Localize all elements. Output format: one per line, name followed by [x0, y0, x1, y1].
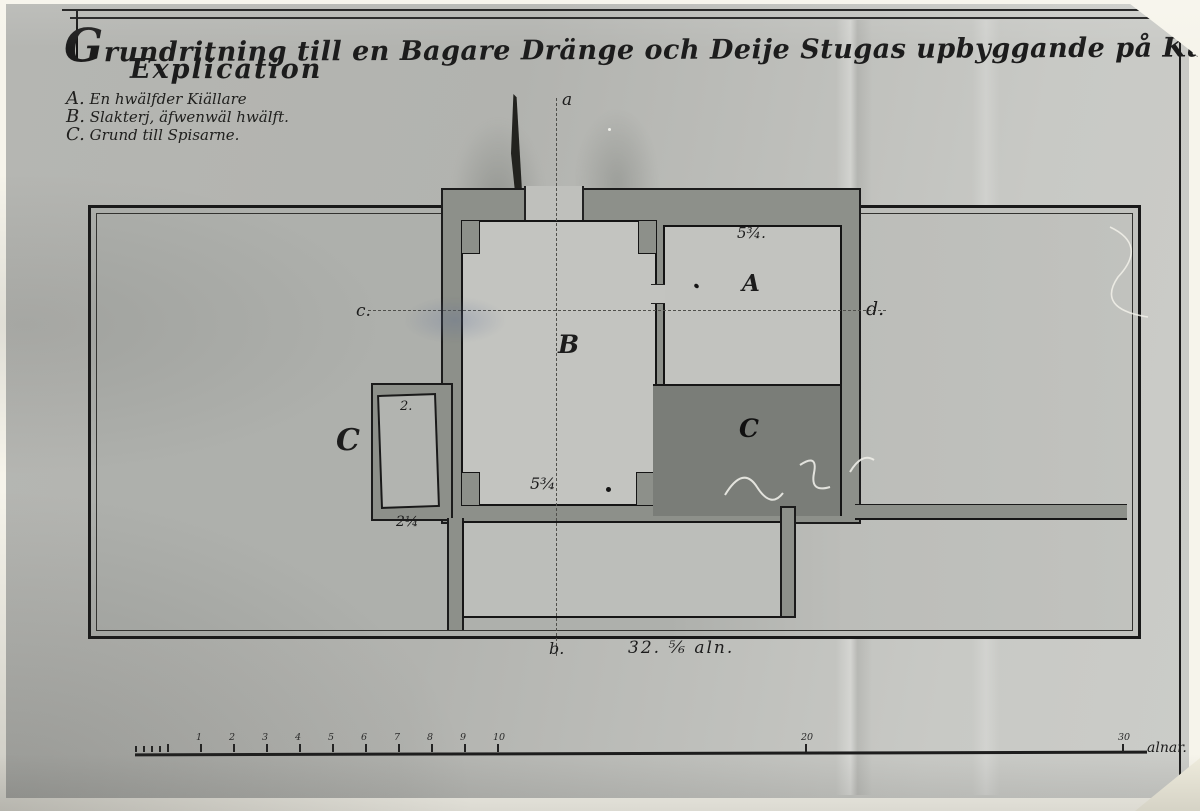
scale-tick-zero	[167, 744, 169, 752]
scale-tick: 9	[464, 744, 466, 752]
scale-tick: 3	[266, 744, 268, 752]
photographed-plan-document: Grundritning till en Bagare Dränge och D…	[0, 0, 1200, 811]
scale-tick-label: 2	[229, 732, 235, 743]
scratch-marks	[700, 430, 890, 540]
room-b-slakteri	[461, 220, 657, 506]
scale-tick: 6	[365, 744, 367, 752]
scale-tick-30: 30	[1122, 744, 1124, 752]
section-label-a: a	[562, 92, 572, 109]
section-label-c: c.	[356, 303, 371, 320]
hearth-label: C	[336, 426, 360, 456]
wall-pilaster	[461, 220, 480, 254]
scratch-mark	[1095, 215, 1185, 325]
room-a-label: A	[742, 272, 760, 295]
page-border-right-line	[1179, 10, 1181, 793]
overall-width-dimension: 32. ⅚ aln.	[628, 640, 734, 657]
scale-tick: 4	[299, 744, 301, 752]
bottom-wall-band	[855, 504, 1127, 520]
scale-tick-label: 5	[328, 732, 334, 743]
photo-dust-specks	[608, 128, 611, 131]
scale-subtick	[135, 746, 137, 752]
scale-tick-label: 6	[361, 732, 367, 743]
scale-tick-label: 3	[262, 732, 268, 743]
room-b-label: B	[558, 332, 579, 357]
explication-heading: Explication	[130, 56, 322, 83]
room-a-kallare	[663, 225, 842, 386]
scale-bar: 20 30 12345678910 alnar.	[135, 732, 1147, 758]
ink-dot	[606, 487, 611, 492]
blue-ink-smudge	[400, 295, 510, 345]
scale-tick: 8	[431, 744, 433, 752]
explication-item-c: C. Grund till Spisarne.	[66, 126, 289, 144]
scale-tick-label: 8	[427, 732, 433, 743]
explication-item-b: B. Slakterj, äfwenwäl hwälft.	[66, 108, 289, 126]
room-a-dimension: 5¾.	[737, 226, 766, 241]
scale-tick: 10	[497, 744, 499, 752]
scale-subtick	[151, 746, 153, 752]
room-b-dimension: 5¾	[530, 476, 556, 492]
scale-tick-20: 20	[805, 744, 807, 752]
scale-subtick	[159, 746, 161, 752]
explication-item-a: A. En hwälfder Kiällare	[66, 90, 289, 108]
dark-area-label: C	[739, 416, 759, 441]
scale-tick-label: 1	[196, 732, 202, 743]
scale-tick-label: 20	[801, 732, 813, 743]
scale-tick: 5	[332, 744, 334, 752]
wall-pilaster	[461, 472, 480, 506]
scale-tick: 2	[233, 744, 235, 752]
hearth-dimension: 2¼	[396, 515, 418, 529]
scale-tick: 7	[398, 744, 400, 752]
section-label-d: d.	[866, 300, 884, 319]
page-border-top-line	[62, 9, 1181, 11]
explication-list: A. En hwälfder Kiällare B. Slakterj, äfw…	[66, 90, 289, 144]
scale-tick: 1	[200, 744, 202, 752]
entrance-door-gap	[524, 186, 584, 220]
scale-tick-label: 9	[460, 732, 466, 743]
scale-subtick	[143, 746, 145, 752]
scale-bar-baseline	[135, 751, 1147, 757]
scale-unit-label: alnar.	[1147, 741, 1187, 755]
scale-tick-label: 10	[493, 732, 505, 743]
hearth-inner-label: 2.	[400, 400, 412, 413]
scale-tick-label: 7	[394, 732, 400, 743]
interior-door-gap	[651, 284, 665, 304]
scale-tick-label: 30	[1118, 732, 1130, 743]
wall-pilaster	[638, 220, 657, 254]
section-label-b: b.	[549, 641, 564, 657]
section-line-a-b	[556, 98, 557, 656]
scale-tick-label: 4	[295, 732, 301, 743]
